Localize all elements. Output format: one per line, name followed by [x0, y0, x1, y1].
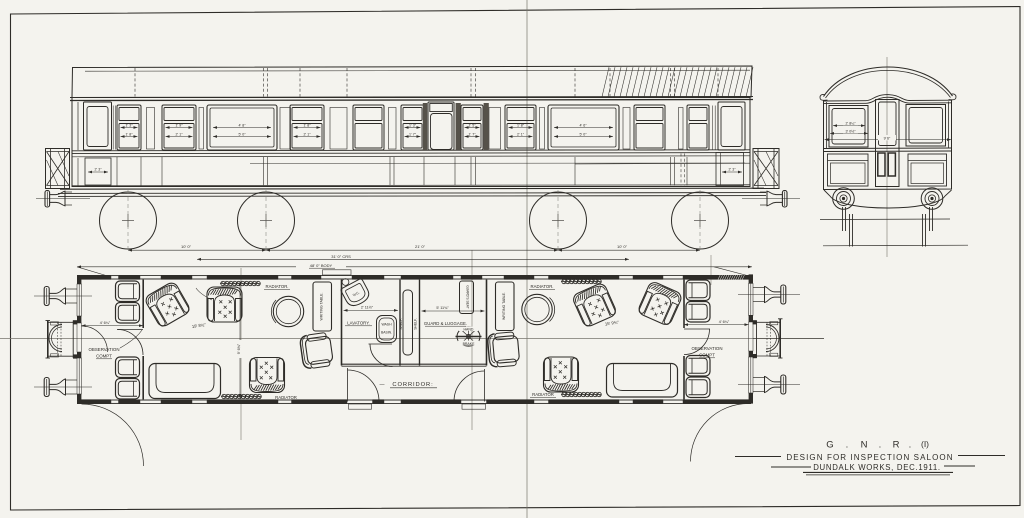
- svg-text:9' 6": 9' 6": [884, 137, 891, 141]
- svg-text:.: .: [879, 440, 882, 451]
- svg-text:4' 6¼": 4' 6¼": [719, 320, 730, 324]
- svg-text:(I): (I): [921, 439, 929, 449]
- svg-text:—: —: [380, 382, 385, 388]
- svg-text:1' 7": 1' 7": [409, 133, 417, 137]
- svg-text:B​ASIN.: B​ASIN.: [381, 331, 392, 335]
- svg-text:3' 0½": 3' 0½": [846, 129, 857, 133]
- svg-text:10' 0": 10' 0": [181, 244, 192, 249]
- svg-text:R​ADIATOR.: R​ADIATOR.: [266, 284, 289, 289]
- svg-text:C​OMP​T: C​OMP​T: [699, 353, 715, 358]
- svg-text:G: G: [826, 440, 833, 451]
- svg-text:1' 9": 1' 9": [176, 124, 184, 128]
- svg-text:D​ESIGN ​FOR I​NSPECTION S​ALO: D​ESIGN ​FOR I​NSPECTION S​ALOON: [786, 453, 953, 462]
- svg-text:O​BSERVATION: O​BSERVATION: [89, 347, 120, 352]
- svg-text:2' 1": 2' 1": [304, 133, 312, 137]
- svg-text:31' 0" C​RS: 31' 0" C​RS: [331, 254, 351, 259]
- svg-text:1' 5": 1' 5": [469, 124, 477, 128]
- svg-text:15' 9¾": 15' 9¾": [605, 319, 620, 326]
- svg-text:2' 3": 2' 3": [729, 168, 737, 172]
- svg-text:G​UARD & L​UGGAGE.: G​UARD & L​UGGAGE.: [424, 321, 467, 326]
- svg-text:C​ORRIDOR:: C​ORRIDOR:: [392, 382, 433, 388]
- svg-text:4' 6¼": 4' 6¼": [100, 321, 111, 325]
- svg-text:2' 1": 2' 1": [517, 133, 525, 137]
- svg-text:O​BSERVATION: O​BSERVATION: [692, 346, 723, 351]
- svg-text:S​HELF.: S​HELF.: [414, 318, 418, 330]
- svg-text:R​ADIATOR: R​ADIATOR: [532, 392, 554, 397]
- svg-text:N: N: [861, 440, 868, 451]
- svg-text:5' 0": 5' 0": [239, 133, 247, 137]
- svg-text:W.C.: W.C.: [352, 290, 360, 297]
- svg-text:R​ADIATOR.: R​ADIATOR.: [531, 284, 554, 289]
- svg-text:48' 0" B​ODY: 48' 0" B​ODY: [310, 263, 333, 268]
- svg-text:1' 8": 1' 8": [126, 133, 134, 137]
- svg-text:2' 1": 2' 1": [176, 133, 184, 137]
- svg-text:2' 11½": 2' 11½": [361, 305, 374, 309]
- svg-text:G​UARD’S S​EAT: G​UARD’S S​EAT: [466, 285, 470, 308]
- svg-text:R: R: [893, 440, 900, 451]
- svg-text:9' 6¾": 9' 6¾": [237, 343, 241, 354]
- svg-text:5' 11¾": 5' 11¾": [436, 306, 449, 310]
- svg-text:S​HELF.: S​HELF.: [399, 318, 403, 330]
- svg-text:2' 3": 2' 3": [95, 168, 103, 172]
- svg-text:D​UNDALK W​ORKS​, D​EC​.1911.: D​UNDALK W​ORKS​, D​EC​.1911.: [813, 463, 941, 472]
- svg-text:.: .: [909, 440, 912, 451]
- svg-text:H​AND: H​AND: [464, 327, 474, 331]
- svg-text:1' 8": 1' 8": [304, 124, 312, 128]
- svg-text:W​RITING T​ABLE.: W​RITING T​ABLE.: [502, 292, 506, 320]
- svg-text:5' 0": 5' 0": [580, 133, 588, 137]
- svg-text:10' 0": 10' 0": [617, 244, 628, 249]
- svg-text:4' 8": 4' 8": [239, 124, 247, 128]
- svg-text:C​OMP​T: C​OMP​T: [96, 354, 112, 359]
- svg-text:1' 3": 1' 3": [409, 124, 417, 128]
- svg-text:19' 8½": 19' 8½": [192, 322, 207, 329]
- svg-text:1' 3": 1' 3": [126, 124, 134, 128]
- svg-text:L​AVATORY.: L​AVATORY.: [347, 321, 369, 326]
- svg-text:R​ADIATOR: R​ADIATOR: [275, 395, 297, 400]
- svg-text:1' 7": 1' 7": [469, 133, 477, 137]
- svg-text:W​ASH: W​ASH: [381, 323, 392, 327]
- svg-text:W​RITING T​ABLE.: W​RITING T​ABLE.: [320, 293, 324, 321]
- svg-text:B​RAKE: B​RAKE: [463, 342, 476, 346]
- svg-text:21' 0": 21' 0": [415, 244, 426, 249]
- svg-text:.: .: [846, 440, 849, 451]
- svg-text:1' 8": 1' 8": [517, 124, 525, 128]
- svg-text:2' 8¼": 2' 8¼": [846, 122, 857, 126]
- svg-text:4' 6": 4' 6": [580, 124, 588, 128]
